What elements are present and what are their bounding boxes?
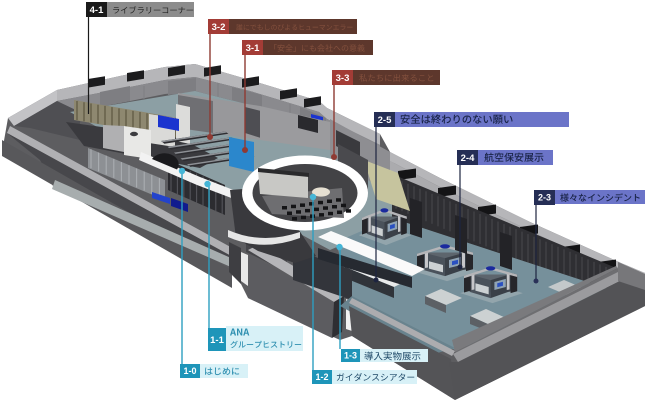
svg-text:3-1: 3-1 — [246, 43, 260, 54]
svg-text:3-2: 3-2 — [212, 22, 226, 33]
svg-text:1-2: 1-2 — [315, 372, 328, 382]
svg-text:1-1: 1-1 — [210, 335, 224, 346]
svg-text:2-3: 2-3 — [538, 193, 551, 203]
svg-text:4-1: 4-1 — [90, 5, 104, 16]
svg-text:2-4: 2-4 — [461, 153, 475, 164]
svg-text:1-0: 1-0 — [183, 366, 196, 376]
svg-text:2-5: 2-5 — [378, 115, 392, 126]
svg-text:3-3: 3-3 — [336, 73, 350, 84]
svg-text:1-3: 1-3 — [344, 351, 357, 361]
